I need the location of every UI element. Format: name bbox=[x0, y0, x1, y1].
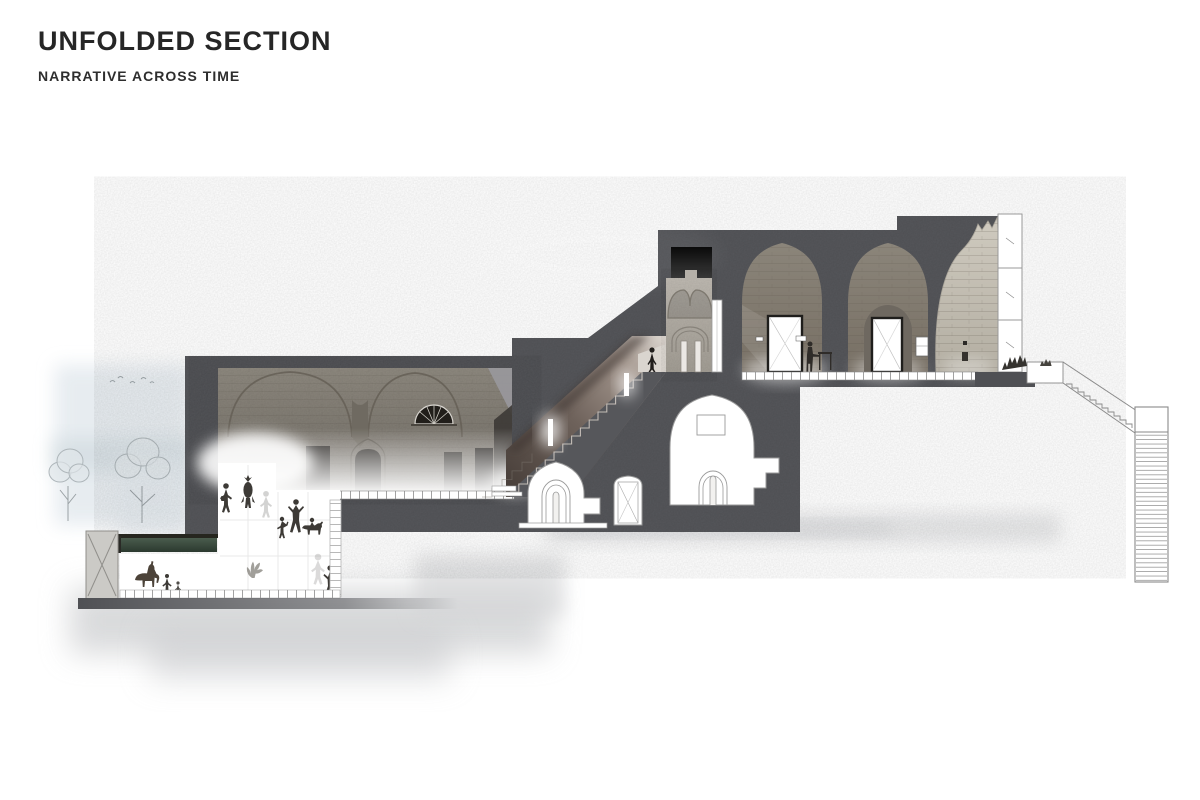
gallery-floor-walkway bbox=[120, 590, 340, 598]
shaft-top-stub bbox=[685, 270, 697, 280]
narrow-door bbox=[614, 476, 642, 525]
shrubs-silhouette-small bbox=[1040, 359, 1052, 366]
room2-wall-cabinet bbox=[916, 337, 928, 356]
section-drawing bbox=[0, 0, 1200, 800]
green-roof-lintel bbox=[118, 534, 218, 538]
stair-tower-treads bbox=[1136, 432, 1167, 581]
gallery-ladder-strip bbox=[330, 500, 341, 597]
gallery-base-slab bbox=[78, 598, 458, 609]
green-roof-band bbox=[120, 538, 217, 552]
floor-marker-2 bbox=[492, 492, 522, 496]
glazing-frame bbox=[998, 214, 1022, 372]
cell-floor-line bbox=[519, 523, 607, 528]
dome-niche-column bbox=[710, 476, 716, 505]
room1-wall-light-2 bbox=[756, 337, 763, 341]
shaft-window-slot-2 bbox=[695, 341, 701, 372]
light-slot-2 bbox=[624, 373, 629, 396]
room1-glass-door bbox=[768, 316, 802, 372]
shaft-window-slot-1 bbox=[681, 341, 687, 372]
stair-stringer-bottom bbox=[1063, 383, 1135, 433]
shaft-texture bbox=[666, 278, 712, 372]
cell-column bbox=[553, 492, 559, 524]
ground-wash-blotch bbox=[150, 628, 450, 680]
stair-stringer-top bbox=[1063, 362, 1140, 413]
braced-pier bbox=[86, 531, 118, 599]
right-walkway bbox=[742, 372, 978, 380]
light-slot-1 bbox=[548, 419, 553, 446]
ruin-niche bbox=[962, 352, 968, 361]
dome-room-window bbox=[697, 415, 725, 435]
ruin-putlog-hole bbox=[963, 341, 967, 345]
room1-wall-light-1 bbox=[796, 336, 806, 341]
hall-walkway bbox=[338, 491, 514, 499]
exterior-stairs bbox=[1063, 362, 1168, 582]
room2-glass-door bbox=[872, 318, 902, 372]
stair-flight-steps bbox=[1066, 384, 1132, 428]
landing-slab-poche bbox=[975, 372, 1035, 387]
floor-marker-1 bbox=[492, 486, 516, 491]
architectural-sheet: UNFOLDED SECTION NARRATIVE ACROSS TIME bbox=[0, 0, 1200, 800]
